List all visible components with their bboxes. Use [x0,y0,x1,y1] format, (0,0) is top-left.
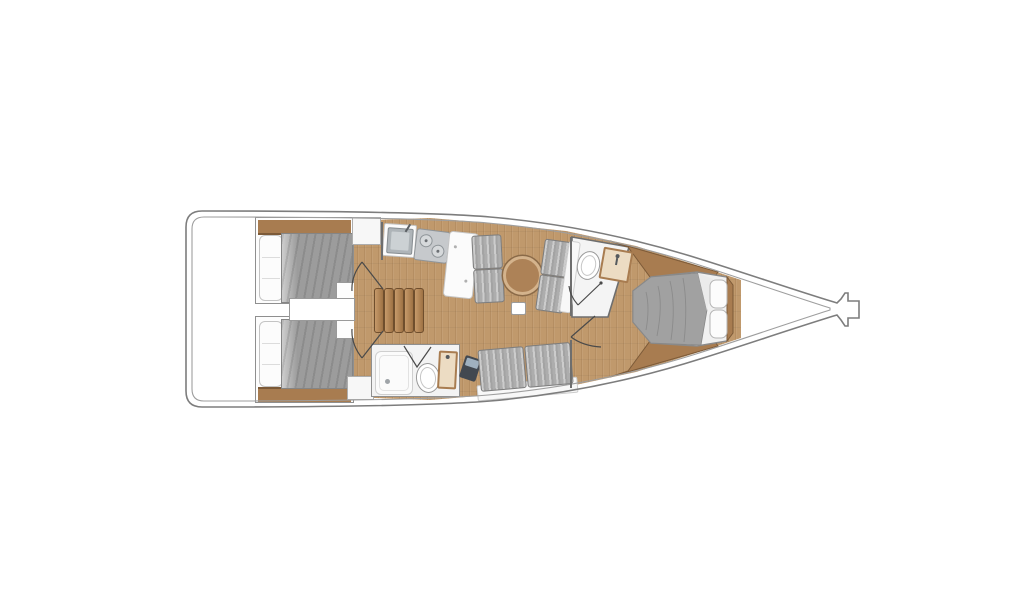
bulkhead-walls [382,222,571,388]
deck-inner-line [192,217,830,401]
door-swing-forward-shower [569,283,601,305]
hull-outline [186,211,859,407]
hull-and-lines [0,0,1024,600]
door-swing-aft-cabin-port [352,262,383,291]
bifold-shower-door [404,346,431,367]
door-swing-aft-cabin-starboard [352,329,383,358]
floor-plan [0,0,1024,600]
door-hinge-dot [599,281,602,284]
door-swing-forward-cabin [571,316,601,347]
